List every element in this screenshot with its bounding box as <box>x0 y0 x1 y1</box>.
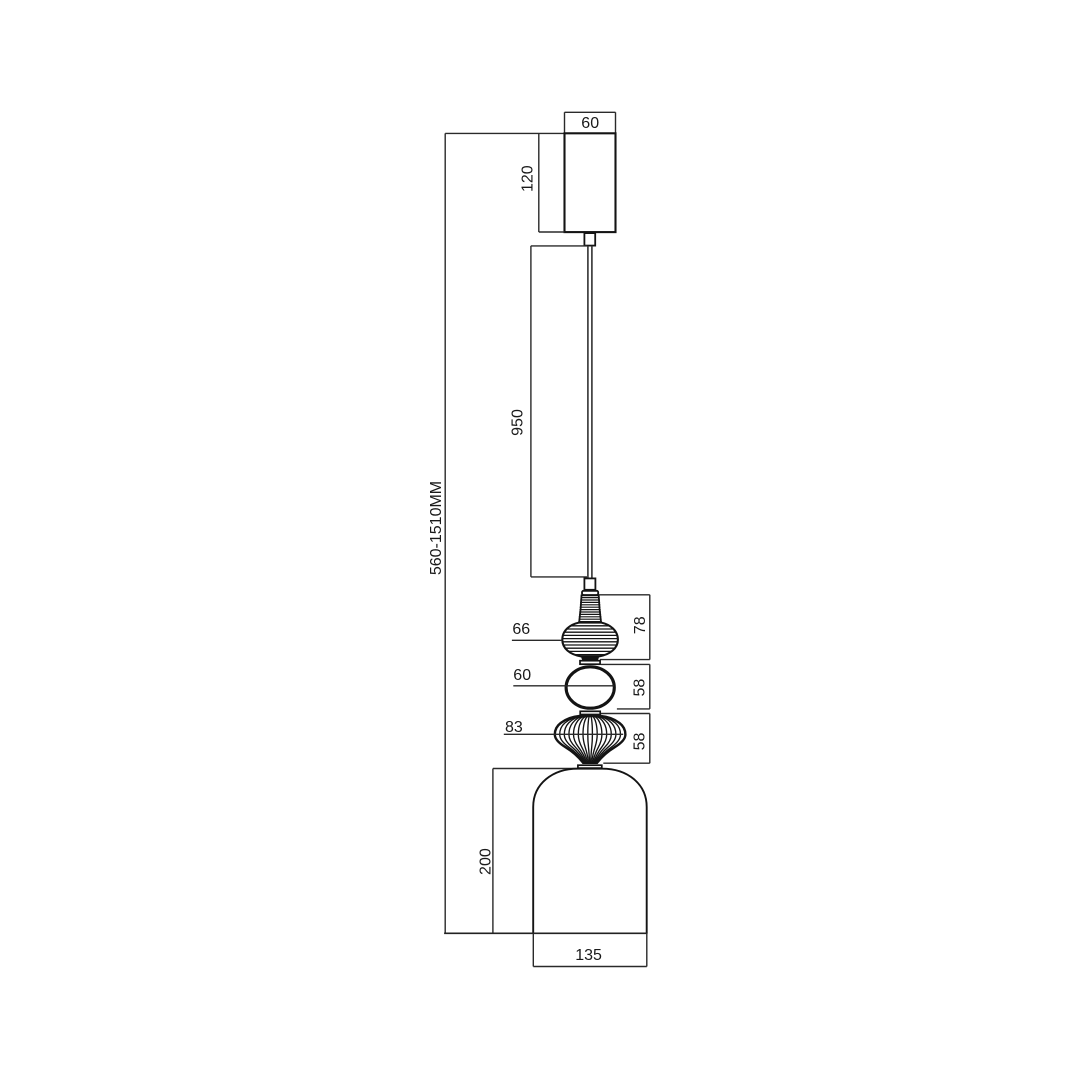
svg-text:58: 58 <box>632 733 649 751</box>
svg-text:83: 83 <box>505 719 523 736</box>
svg-text:60: 60 <box>581 115 599 132</box>
svg-text:120: 120 <box>520 165 537 192</box>
svg-text:58: 58 <box>632 679 649 697</box>
svg-text:200: 200 <box>477 848 494 875</box>
svg-text:66: 66 <box>512 621 530 638</box>
svg-text:950: 950 <box>510 409 527 436</box>
svg-text:560-1510MM: 560-1510MM <box>428 481 445 575</box>
svg-text:78: 78 <box>632 616 649 634</box>
svg-text:60: 60 <box>513 667 531 684</box>
svg-text:135: 135 <box>575 947 602 964</box>
